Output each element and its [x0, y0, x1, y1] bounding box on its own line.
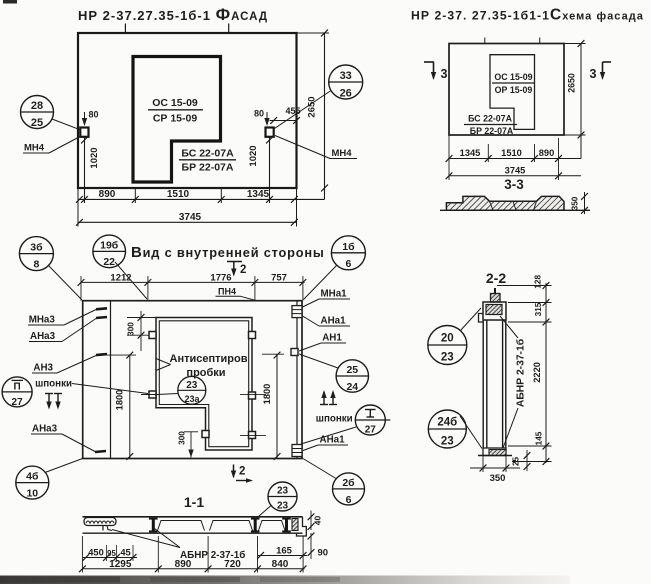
svg-text:МН4: МН4: [332, 148, 353, 159]
svg-text:2б: 2б: [342, 477, 355, 489]
svg-text:МНа3: МНа3: [29, 315, 56, 326]
svg-text:23: 23: [186, 380, 198, 391]
svg-text:450: 450: [88, 548, 104, 558]
svg-text:1510: 1510: [167, 189, 190, 200]
svg-text:АН1: АН1: [322, 333, 342, 344]
svg-text:350: 350: [490, 473, 506, 484]
svg-text:1800: 1800: [115, 390, 125, 411]
svg-text:300: 300: [178, 431, 187, 445]
svg-text:90: 90: [318, 548, 329, 559]
svg-text:1б: 1б: [342, 241, 355, 253]
svg-text:27: 27: [12, 397, 24, 408]
svg-text:95: 95: [107, 549, 116, 558]
svg-text:22: 22: [103, 256, 115, 268]
svg-text:2220: 2220: [532, 362, 542, 383]
svg-text:1-1: 1-1: [184, 494, 204, 510]
svg-text:2650: 2650: [567, 73, 577, 93]
svg-text:1345: 1345: [247, 189, 270, 200]
svg-text:АНа1: АНа1: [320, 435, 346, 446]
svg-text:2: 2: [240, 264, 246, 276]
svg-text:ОС 15-09: ОС 15-09: [494, 72, 532, 82]
svg-text:Вид с внутренней стороны: Вид с внутренней стороны: [131, 244, 325, 261]
svg-text:3-3: 3-3: [504, 177, 524, 192]
svg-text:Антисептиров: Антисептиров: [170, 353, 248, 365]
svg-text:23: 23: [277, 486, 289, 497]
svg-text:25: 25: [31, 117, 43, 129]
svg-text:128: 128: [534, 275, 543, 289]
svg-text:1345: 1345: [460, 148, 481, 158]
svg-text:24: 24: [346, 381, 358, 393]
svg-text:1776: 1776: [210, 272, 231, 283]
svg-text:БС 22-07А: БС 22-07А: [468, 114, 513, 124]
svg-text:300: 300: [127, 322, 136, 336]
svg-text:757: 757: [271, 272, 287, 283]
svg-text:1800: 1800: [262, 384, 272, 405]
svg-text:4б: 4б: [26, 471, 39, 483]
svg-text:27: 27: [365, 425, 377, 436]
svg-text:840: 840: [272, 559, 289, 570]
svg-text:80: 80: [89, 110, 99, 120]
svg-text:23а: 23а: [184, 394, 200, 404]
svg-text:3745: 3745: [179, 212, 202, 223]
svg-text:2: 2: [239, 466, 245, 478]
svg-text:24б: 24б: [437, 417, 457, 429]
svg-text:23: 23: [441, 352, 454, 364]
svg-text:3745: 3745: [505, 165, 526, 175]
svg-text:пробки: пробки: [186, 367, 225, 379]
svg-text:26: 26: [340, 88, 352, 100]
svg-text:шпонки: шпонки: [316, 414, 353, 425]
svg-text:315: 315: [534, 302, 543, 316]
svg-text:АНа3: АНа3: [30, 331, 56, 342]
svg-text:23: 23: [441, 436, 454, 448]
svg-text:2-2: 2-2: [486, 270, 506, 286]
svg-text:6: 6: [345, 258, 351, 270]
svg-text:720: 720: [224, 559, 241, 570]
svg-text:АБНР 2-37-1б: АБНР 2-37-1б: [515, 339, 527, 407]
svg-text:165: 165: [276, 546, 293, 557]
svg-text:350: 350: [571, 196, 580, 210]
svg-text:АНа3: АНа3: [32, 424, 58, 435]
svg-text:3б: 3б: [30, 242, 43, 254]
svg-text:1020: 1020: [248, 145, 259, 166]
svg-text:6: 6: [346, 494, 352, 506]
svg-text:1020: 1020: [89, 147, 100, 168]
svg-text:шпонки: шпонки: [35, 379, 72, 390]
svg-text:БС 22-07А: БС 22-07А: [181, 148, 234, 160]
svg-text:ОР 15-09: ОР 15-09: [495, 85, 533, 95]
svg-text:3: 3: [441, 67, 448, 81]
svg-text:145: 145: [535, 431, 544, 445]
svg-text:БР 22-07А: БР 22-07А: [182, 162, 234, 174]
svg-text:19б: 19б: [100, 239, 119, 251]
svg-text:ПН4: ПН4: [218, 287, 236, 297]
svg-text:890: 890: [99, 189, 116, 200]
svg-text:33: 33: [340, 70, 352, 82]
svg-text:40: 40: [313, 516, 323, 526]
svg-text:890: 890: [175, 559, 192, 570]
svg-text:45: 45: [120, 548, 130, 558]
svg-text:1510: 1510: [501, 148, 522, 158]
svg-text:25: 25: [512, 457, 521, 467]
svg-text:ОС 15-09: ОС 15-09: [152, 97, 198, 109]
svg-text:20: 20: [441, 333, 454, 345]
svg-text:МНа1: МНа1: [321, 289, 348, 300]
svg-text:80: 80: [254, 109, 264, 119]
svg-text:3: 3: [590, 67, 597, 81]
svg-text:МН4: МН4: [24, 143, 45, 154]
svg-text:АНа1: АНа1: [321, 316, 347, 327]
svg-text:23: 23: [277, 501, 289, 512]
svg-text:8: 8: [33, 259, 39, 271]
svg-text:25: 25: [346, 364, 358, 376]
svg-text:СР 15-09: СР 15-09: [153, 113, 198, 125]
svg-text:АН3: АН3: [33, 363, 53, 374]
svg-text:2650: 2650: [307, 96, 318, 117]
svg-text:БР 22-07А: БР 22-07А: [470, 126, 514, 136]
svg-text:28: 28: [31, 100, 43, 112]
svg-text:890: 890: [539, 148, 555, 158]
svg-text:1295: 1295: [109, 559, 132, 570]
svg-text:П: П: [14, 381, 21, 392]
svg-text:1212: 1212: [110, 272, 131, 283]
svg-text:455: 455: [286, 106, 301, 116]
svg-text:10: 10: [26, 488, 38, 500]
